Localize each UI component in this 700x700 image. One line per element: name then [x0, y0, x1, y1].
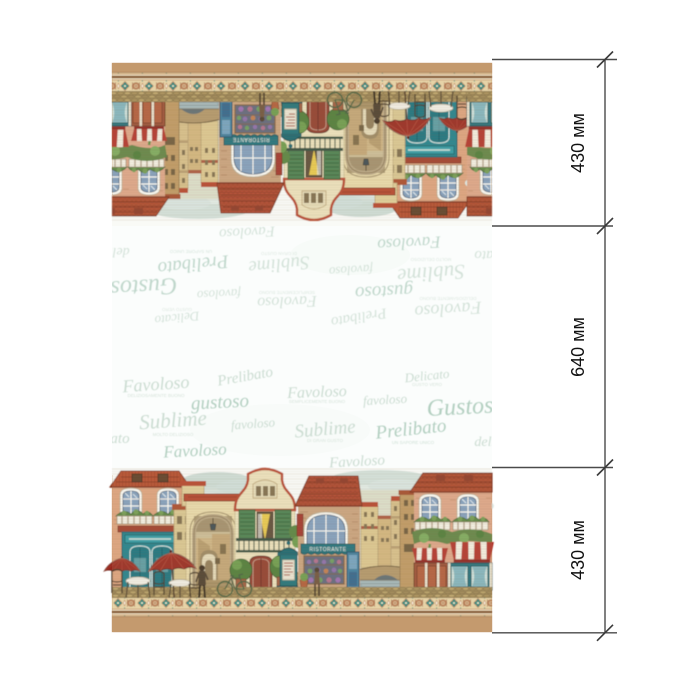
svg-text:favoloso: favoloso	[363, 391, 408, 408]
svg-text:640 мм: 640 мм	[568, 317, 588, 377]
svg-text:favoloso: favoloso	[230, 414, 275, 432]
svg-text:UN SAPORE UNICO: UN SAPORE UNICO	[392, 440, 435, 445]
svg-text:DELIZIOSAMENTE BUONO: DELIZIOSAMENTE BUONO	[127, 393, 185, 398]
svg-text:DI GRAN GUSTO: DI GRAN GUSTO	[307, 438, 343, 443]
svg-text:430 мм: 430 мм	[568, 113, 588, 173]
svg-text:Favoloso: Favoloso	[162, 439, 227, 461]
svg-text:GUSTO VERO: GUSTO VERO	[412, 382, 442, 387]
svg-text:SEMPLICEMENTE BUONO: SEMPLICEMENTE BUONO	[289, 399, 346, 404]
svg-text:MOLTO DELIZIOSO: MOLTO DELIZIOSO	[153, 432, 194, 437]
svg-text:ato: ato	[110, 431, 130, 447]
svg-text:gustoso: gustoso	[190, 390, 249, 414]
svg-text:430 мм: 430 мм	[568, 520, 588, 580]
